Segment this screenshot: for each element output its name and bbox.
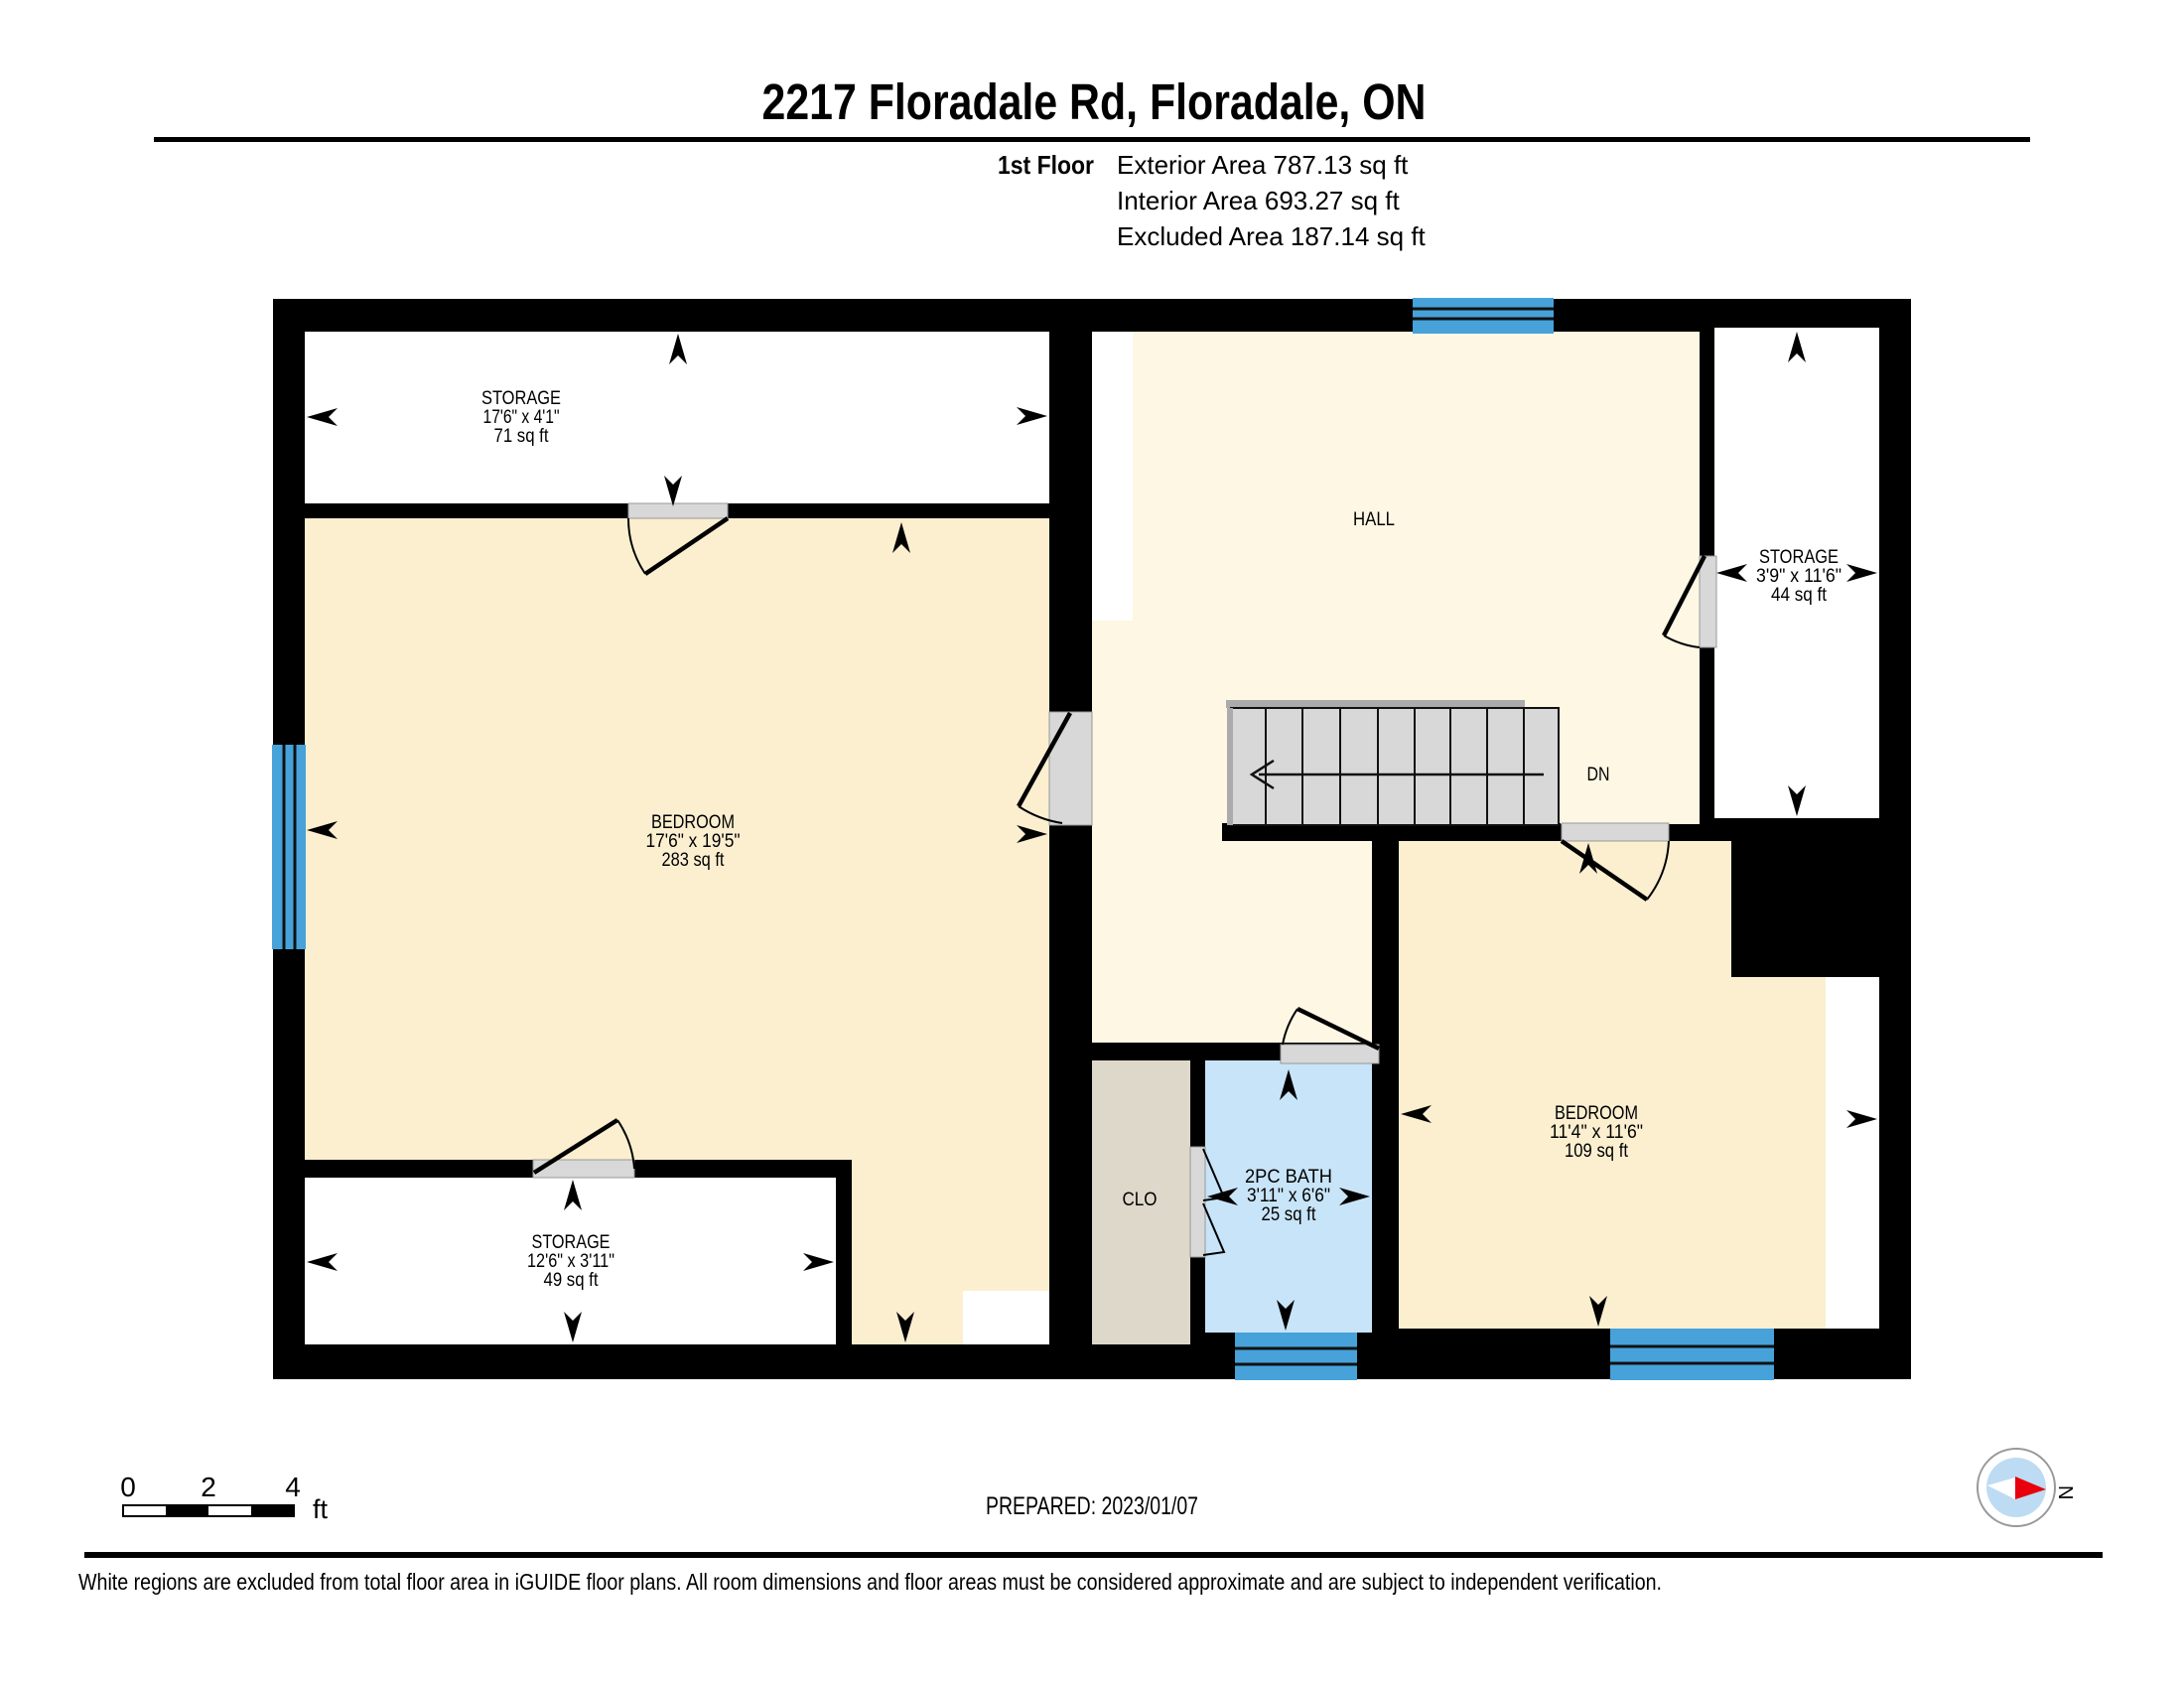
svg-text:Exterior Area 787.13 sq ft: Exterior Area 787.13 sq ft [1117, 150, 1409, 180]
svg-text:PREPARED: 2023/01/07: PREPARED: 2023/01/07 [986, 1492, 1198, 1520]
svg-text:BEDROOM: BEDROOM [1555, 1103, 1638, 1124]
svg-text:283 sq ft: 283 sq ft [662, 850, 726, 871]
svg-text:ft: ft [313, 1494, 329, 1524]
svg-text:BEDROOM: BEDROOM [651, 812, 735, 833]
svg-text:2: 2 [201, 1472, 216, 1502]
svg-text:STORAGE: STORAGE [481, 388, 561, 409]
svg-text:1st Floor: 1st Floor [998, 150, 1094, 180]
svg-text:2PC BATH: 2PC BATH [1245, 1167, 1332, 1188]
svg-text:White regions are excluded fro: White regions are excluded from total fl… [78, 1569, 1662, 1595]
svg-text:4: 4 [285, 1472, 301, 1502]
svg-text:Interior Area 693.27 sq ft: Interior Area 693.27 sq ft [1117, 186, 1401, 215]
svg-text:17'6" x 4'1": 17'6" x 4'1" [483, 407, 560, 428]
svg-text:109 sq ft: 109 sq ft [1565, 1141, 1629, 1162]
svg-text:2217 Floradale Rd, Floradale,: 2217 Floradale Rd, Floradale, ON [762, 73, 1427, 130]
svg-text:25 sq ft: 25 sq ft [1262, 1204, 1317, 1225]
svg-text:17'6" x 19'5": 17'6" x 19'5" [646, 831, 741, 852]
svg-text:STORAGE: STORAGE [1759, 547, 1839, 568]
svg-text:HALL: HALL [1353, 509, 1395, 530]
svg-text:12'6" x 3'11": 12'6" x 3'11" [527, 1251, 614, 1272]
svg-text:71 sq ft: 71 sq ft [494, 426, 550, 447]
svg-text:44 sq ft: 44 sq ft [1771, 585, 1828, 606]
svg-text:DN: DN [1587, 765, 1610, 785]
svg-text:STORAGE: STORAGE [532, 1232, 611, 1253]
svg-text:49 sq ft: 49 sq ft [544, 1270, 600, 1291]
svg-text:11'4" x 11'6": 11'4" x 11'6" [1550, 1122, 1643, 1143]
svg-text:0: 0 [120, 1472, 136, 1502]
svg-text:3'9" x 11'6": 3'9" x 11'6" [1756, 566, 1842, 587]
svg-text:N: N [2054, 1485, 2076, 1499]
svg-text:Excluded Area 187.14 sq ft: Excluded Area 187.14 sq ft [1117, 221, 1427, 251]
svg-text:CLO: CLO [1123, 1190, 1158, 1210]
svg-text:3'11" x 6'6": 3'11" x 6'6" [1247, 1186, 1330, 1206]
